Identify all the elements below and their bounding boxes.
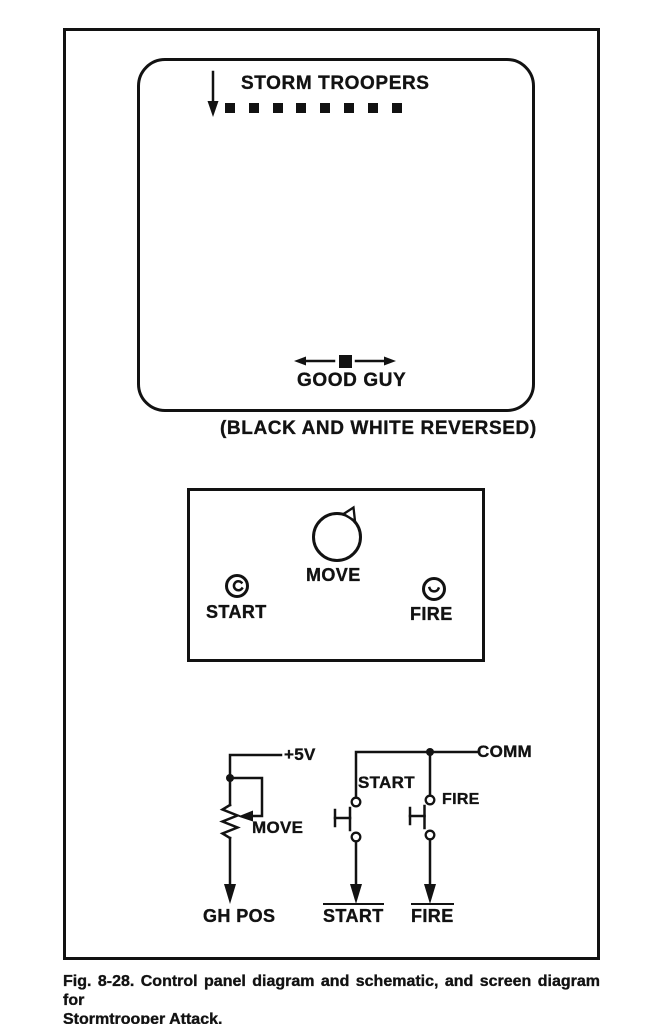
supply-voltage-label: +5V [284,746,316,763]
start-button [225,574,249,598]
stormtrooper-square [368,103,378,113]
pot-label: MOVE [252,819,303,836]
comm-label: COMM [477,743,532,760]
good-guy-label: GOOD GUY [297,371,406,390]
stormtrooper-square [249,103,259,113]
start-switch-label: START [358,774,415,791]
fire-switch-label: FIRE [442,792,480,808]
stormtrooper-square [225,103,235,113]
stormtrooper-square [273,103,283,113]
stormtrooper-square [344,103,354,113]
figure-caption: Fig. 8-28. Control panel diagram and sch… [63,972,600,1024]
start-button-label: START [206,603,267,621]
move-knob-label: MOVE [306,566,361,584]
stormtrooper-square [392,103,402,113]
fire-button [422,577,446,601]
figure-caption-line2: Stormtrooper Attack. [63,1010,600,1024]
fire-button-label: FIRE [410,605,453,623]
scanned-figure-page: STORM TROOPERS GOOD GUY (BLACK AND WHITE… [0,0,656,1024]
stormtrooper-square [320,103,330,113]
move-knob [312,512,362,562]
screen-note: (BLACK AND WHITE REVERSED) [220,419,537,438]
start-output-label: START [323,903,384,925]
stormtrooper-square [296,103,306,113]
stormtrooper-row [225,103,402,113]
fire-output-label: FIRE [411,903,454,925]
gh-pos-label: GH POS [203,907,275,925]
figure-caption-line1: Fig. 8-28. Control panel diagram and sch… [63,972,600,1010]
stormtroopers-label: STORM TROOPERS [241,74,430,93]
